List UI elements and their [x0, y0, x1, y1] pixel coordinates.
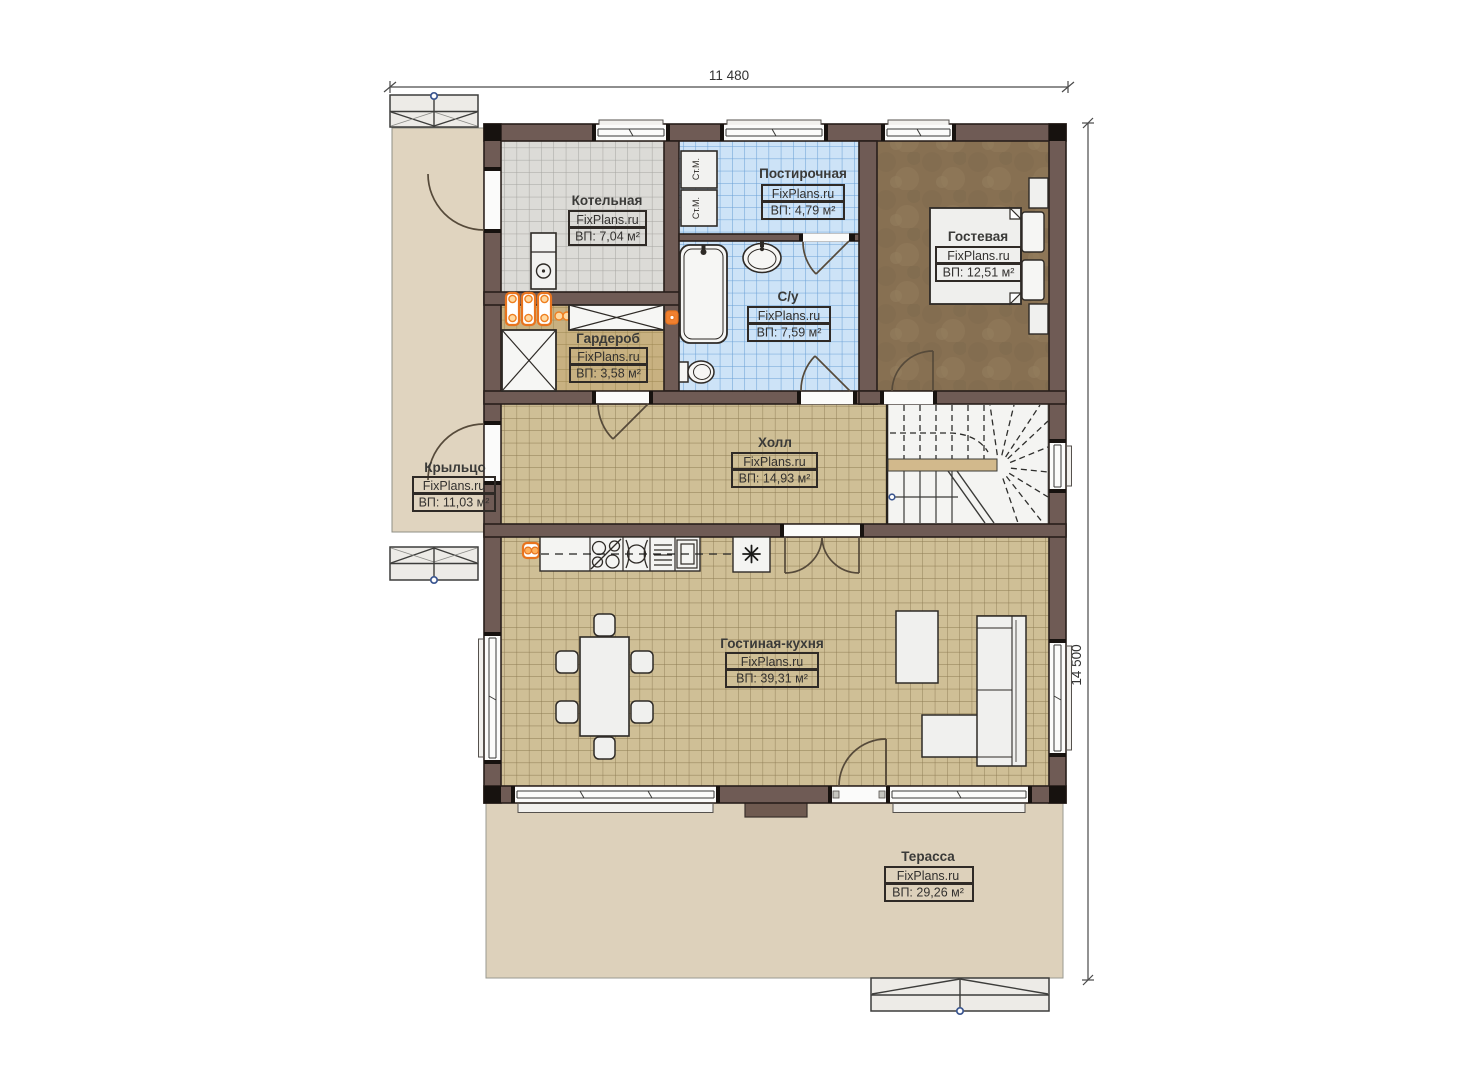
svg-text:Гостевая: Гостевая [948, 229, 1008, 244]
svg-text:ВП: 7,59 м²: ВП: 7,59 м² [757, 326, 822, 340]
svg-text:ВП: 39,31 м²: ВП: 39,31 м² [736, 672, 808, 686]
svg-text:FixPlans.ru: FixPlans.ru [576, 213, 639, 227]
svg-text:FixPlans.ru: FixPlans.ru [758, 309, 821, 323]
svg-text:11 480: 11 480 [709, 68, 749, 83]
svg-text:ВП: 14,93 м²: ВП: 14,93 м² [739, 472, 811, 486]
svg-text:ВП: 4,79 м²: ВП: 4,79 м² [771, 204, 836, 218]
svg-text:ВП: 11,03 м²: ВП: 11,03 м² [419, 496, 490, 510]
svg-text:Холл: Холл [758, 435, 792, 450]
svg-text:Терасса: Терасса [901, 849, 955, 864]
svg-text:Гостиная-кухня: Гостиная-кухня [720, 636, 823, 651]
svg-text:Котельная: Котельная [572, 193, 643, 208]
svg-text:ВП: 29,26 м²: ВП: 29,26 м² [892, 886, 964, 900]
svg-text:FixPlans.ru: FixPlans.ru [741, 655, 804, 669]
svg-text:Постирочная: Постирочная [759, 166, 847, 181]
svg-text:С/у: С/у [777, 289, 799, 304]
svg-text:ВП: 12,51 м²: ВП: 12,51 м² [943, 266, 1015, 280]
svg-text:Ст.М.: Ст.М. [691, 158, 701, 180]
svg-text:Ст.М.: Ст.М. [691, 197, 701, 219]
svg-text:ВП: 3,58 м²: ВП: 3,58 м² [576, 367, 641, 381]
svg-text:FixPlans.ru: FixPlans.ru [743, 455, 806, 469]
svg-text:ВП: 7,04 м²: ВП: 7,04 м² [575, 230, 640, 244]
svg-text:FixPlans.ru: FixPlans.ru [577, 350, 640, 364]
svg-text:FixPlans.ru: FixPlans.ru [772, 187, 835, 201]
svg-text:FixPlans.ru: FixPlans.ru [947, 249, 1010, 263]
svg-text:Крыльцо: Крыльцо [424, 460, 485, 475]
svg-text:Гардероб: Гардероб [576, 331, 640, 346]
svg-text:FixPlans.ru: FixPlans.ru [423, 479, 486, 493]
svg-text:FixPlans.ru: FixPlans.ru [897, 869, 960, 883]
